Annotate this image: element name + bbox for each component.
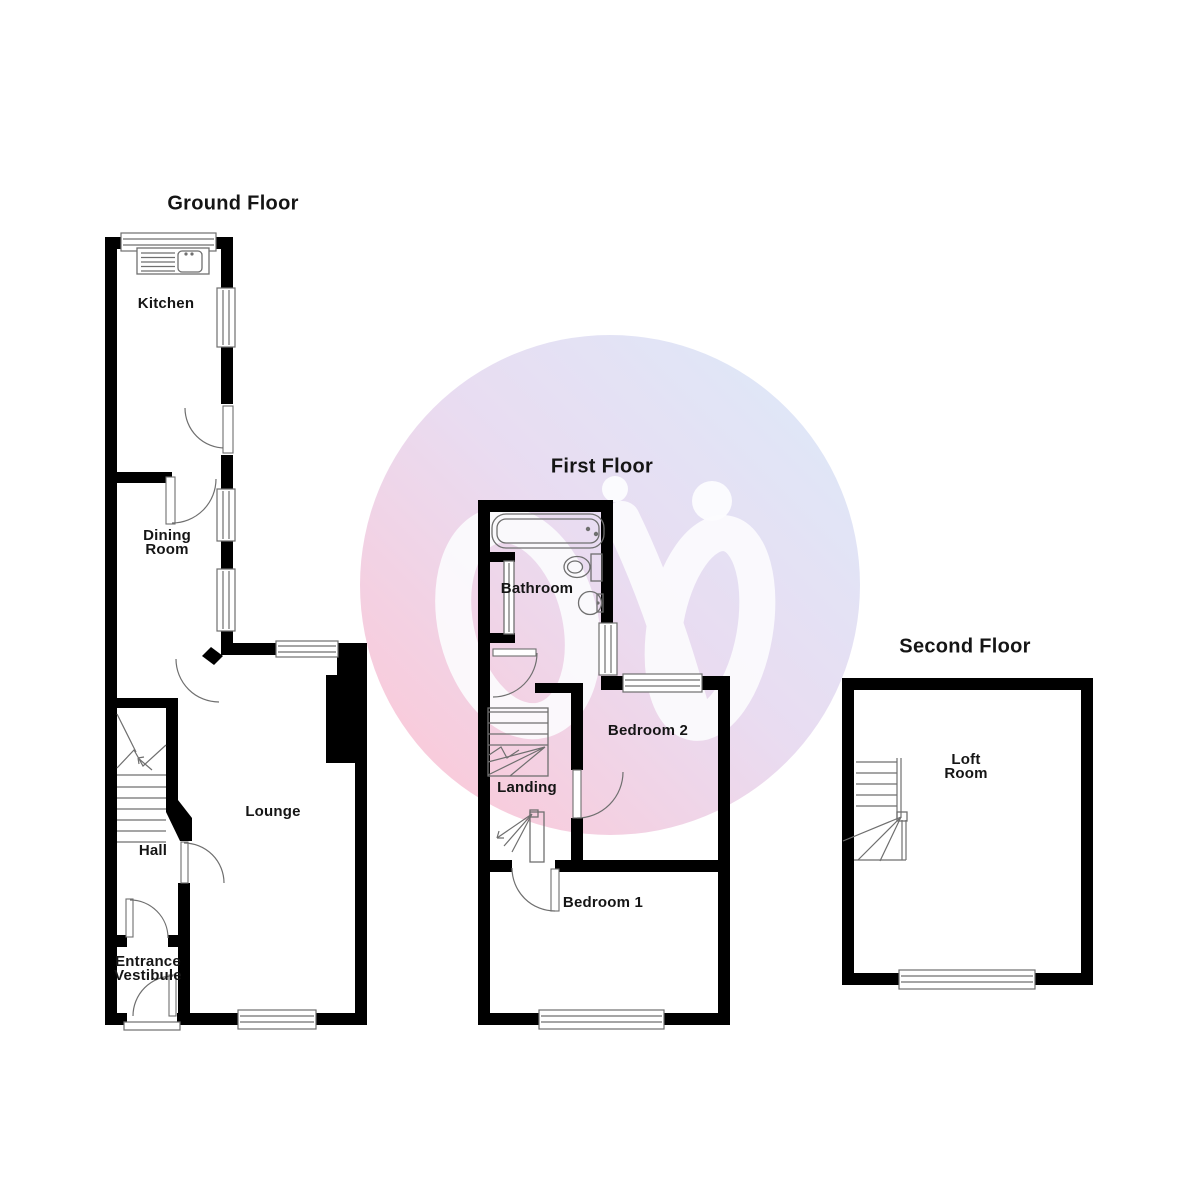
lounge-label: Lounge xyxy=(245,805,300,819)
hall-lounge-door xyxy=(181,842,224,883)
toilet xyxy=(564,554,602,581)
bathroom-side-window xyxy=(599,623,617,675)
loft-room-label: Loft Room xyxy=(944,753,987,782)
first-floor-title: First Floor xyxy=(551,458,653,477)
stairs-landing-up xyxy=(488,708,548,776)
plan-drawing xyxy=(0,0,1200,1200)
second-walls xyxy=(842,678,1093,985)
stairs-landing-down xyxy=(497,810,544,862)
bathroom-label: Bathroom xyxy=(501,582,573,596)
bedroom2-window xyxy=(623,674,702,692)
dining-room-label: Dining Room xyxy=(143,529,191,558)
bathroom-cupboard xyxy=(504,561,514,634)
bedroom1-window xyxy=(539,1010,664,1029)
ground-floor-title: Ground Floor xyxy=(167,195,298,214)
kitchen-side-door xyxy=(185,406,233,453)
kitchen-label: Kitchen xyxy=(138,297,194,311)
floorplan-page: Ground Floor First Floor Second Floor Ki… xyxy=(0,0,1200,1200)
second-floor-plan xyxy=(842,678,1093,989)
kitchen-side-window xyxy=(217,288,235,347)
kitchen-sink xyxy=(137,248,209,274)
lounge-bottom-window xyxy=(238,1010,316,1029)
lounge-top-window xyxy=(276,641,338,657)
ground-walls xyxy=(105,237,367,1025)
kitchen-dining-door xyxy=(166,477,216,524)
bedroom2-label: Bedroom 2 xyxy=(608,724,688,738)
dining-window-1 xyxy=(217,489,235,541)
bath xyxy=(492,514,604,548)
chimney-breast xyxy=(326,675,355,763)
loft-window xyxy=(899,970,1035,989)
hall-label: Hall xyxy=(139,844,167,858)
hall-vestibule-door xyxy=(126,899,168,938)
bathroom-door xyxy=(493,649,537,697)
basin xyxy=(579,592,604,615)
bedroom1-label: Bedroom 1 xyxy=(563,896,643,910)
first-walls xyxy=(478,500,730,1025)
landing-label: Landing xyxy=(497,781,557,795)
stairs-ground xyxy=(117,714,166,842)
entrance-vestibule-label: Entrance Vestibule xyxy=(114,955,182,984)
bedroom1-door xyxy=(512,868,559,911)
bedroom2-door xyxy=(573,770,623,818)
dining-window-2 xyxy=(217,569,235,631)
ground-floor-plan xyxy=(105,233,367,1030)
dining-lounge-door xyxy=(176,647,223,702)
second-floor-title: Second Floor xyxy=(899,638,1030,657)
